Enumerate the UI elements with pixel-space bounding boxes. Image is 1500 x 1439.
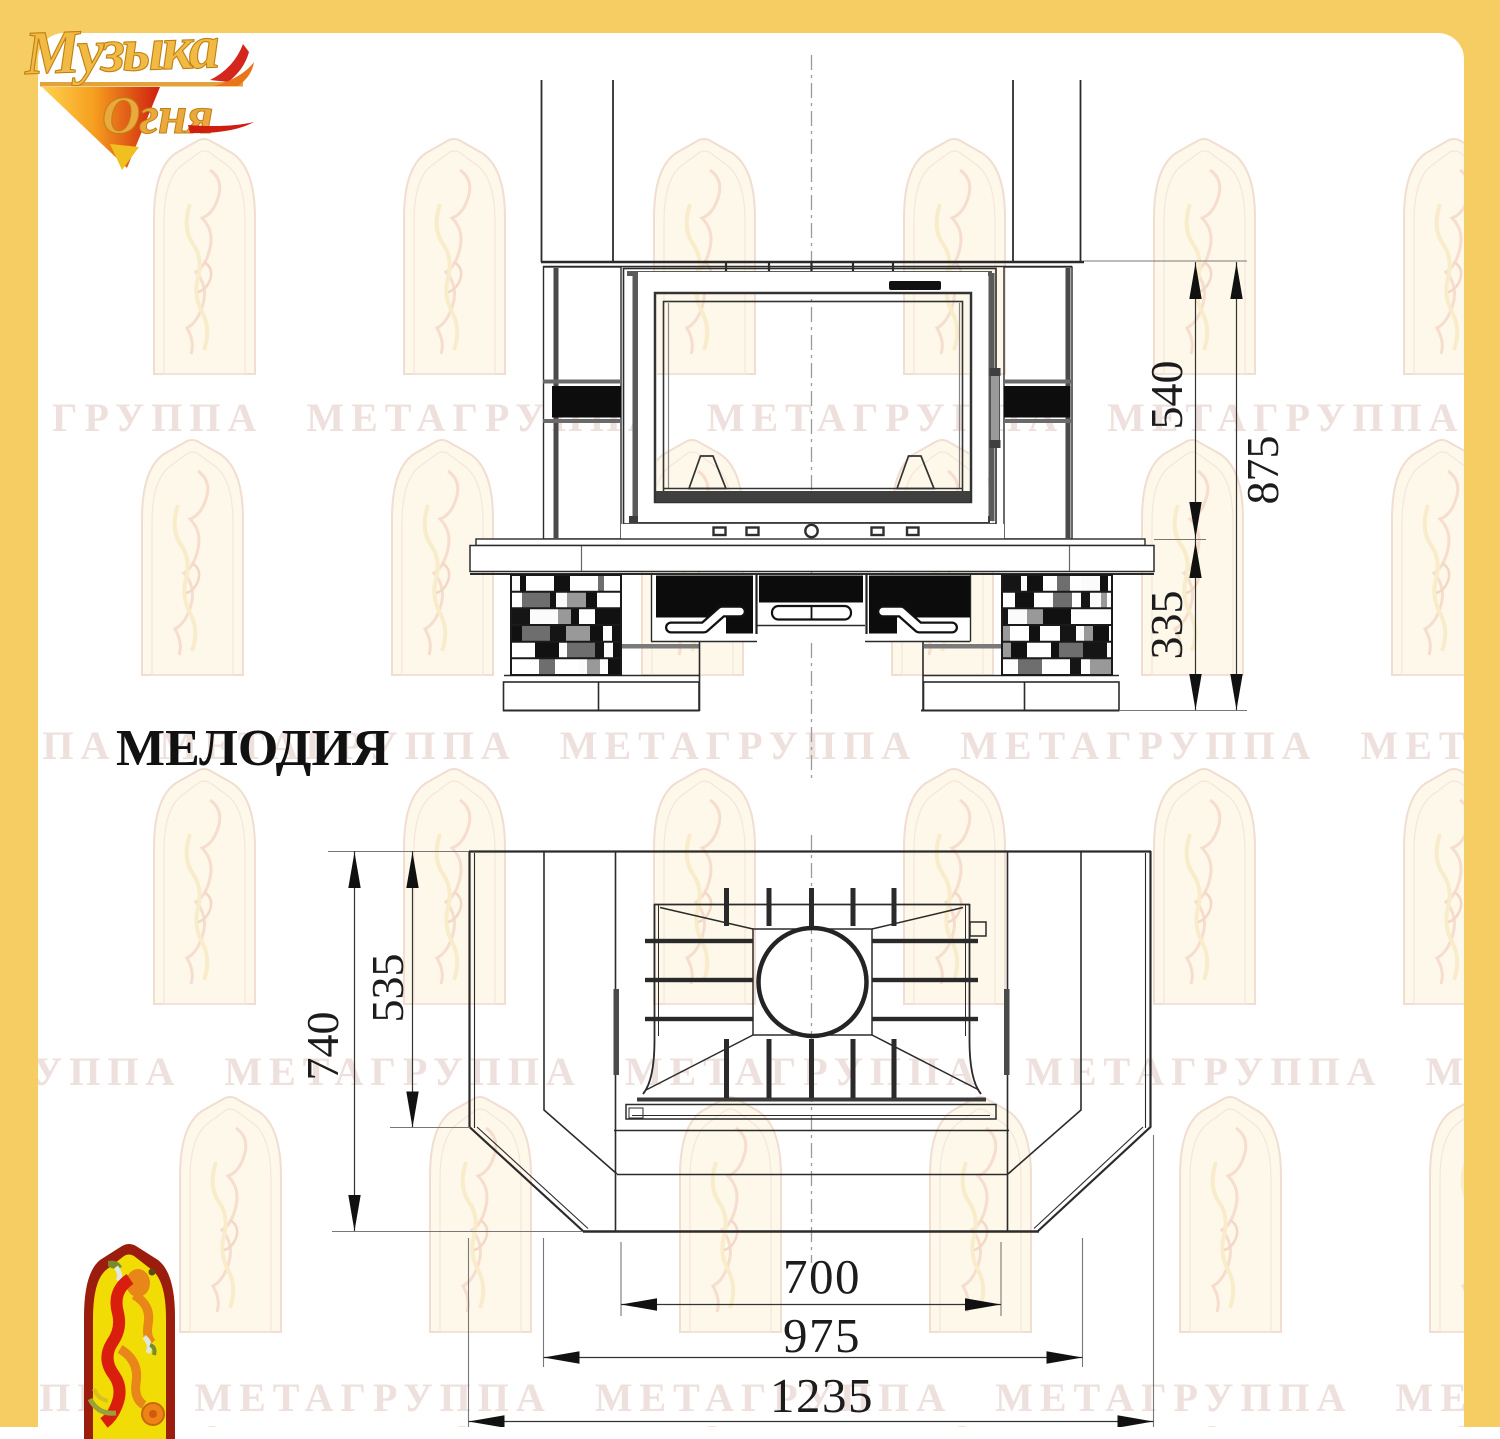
svg-text:1235: 1235 [770, 1368, 874, 1423]
svg-text:Огня: Огня [102, 87, 213, 145]
svg-text:875: 875 [1237, 436, 1288, 505]
svg-text:Музыка: Музыка [23, 13, 220, 88]
svg-text:540: 540 [1141, 361, 1192, 430]
svg-text:700: 700 [783, 1249, 861, 1304]
svg-text:535: 535 [362, 954, 413, 1023]
svg-text:335: 335 [1141, 591, 1192, 660]
svg-text:740: 740 [297, 1012, 348, 1081]
svg-text:975: 975 [783, 1308, 861, 1363]
